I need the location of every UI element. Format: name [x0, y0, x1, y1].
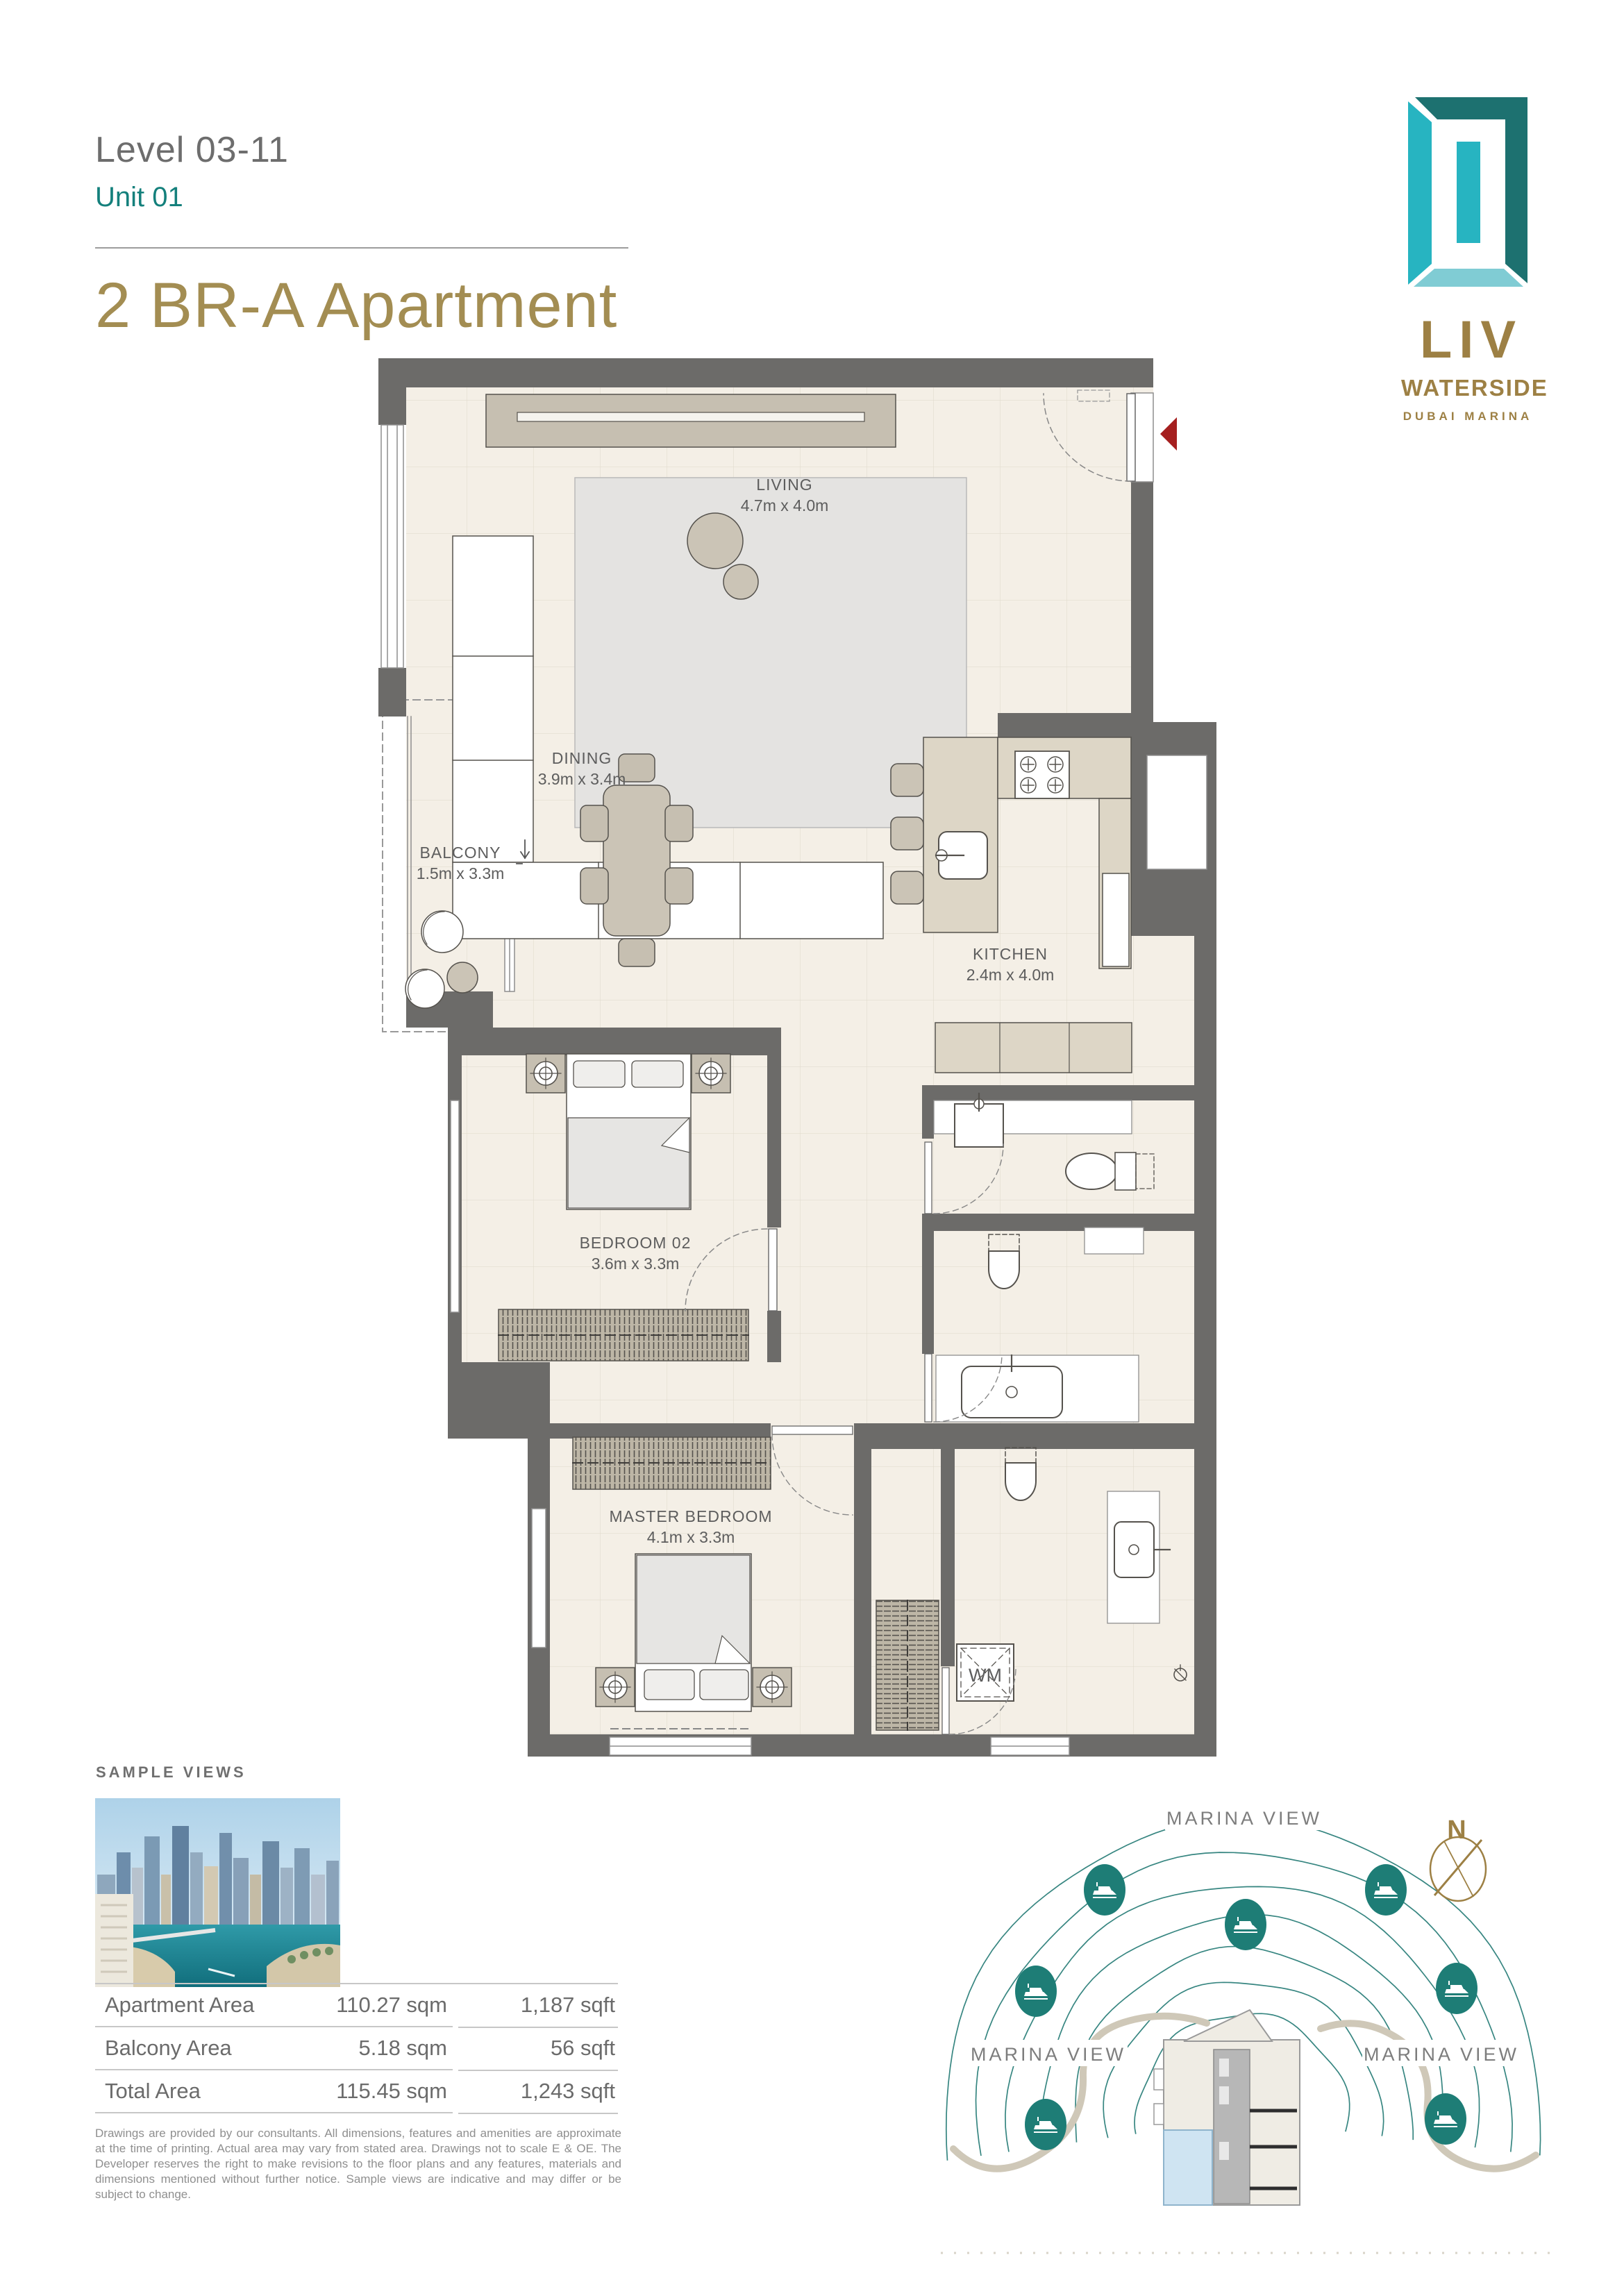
kitchen-dims: 2.4m x 4.0m	[966, 966, 1055, 984]
building-footprint	[1154, 2010, 1300, 2205]
compass-north-label: N	[1447, 1816, 1466, 1845]
wm-label: WM	[969, 1665, 1002, 1686]
floor-plan: LIVING 4.7m x 4.0m DINING 3.9m x 3.4m BA…	[378, 358, 1216, 1757]
sample-view-photo	[95, 1798, 340, 1987]
marina-view-label-left: MARINA VIEW	[971, 2044, 1126, 2065]
master-bedroom-dims: 4.1m x 3.3m	[647, 1528, 735, 1546]
table-row: Apartment Area 110.27 sqm 1,187 sqft	[95, 1984, 618, 2027]
row-sqft: 1,187 sqft	[521, 1993, 615, 2018]
area-table: Apartment Area 110.27 sqm 1,187 sqft Bal…	[95, 1983, 618, 2113]
row-sqm: 115.45 sqm	[336, 2079, 447, 2104]
boat-icon	[1436, 1963, 1477, 2014]
brochure-page: Level 03-11 Unit 01 2 BR-A Apartment LIV…	[0, 0, 1624, 2296]
kitchen-label: KITCHEN	[973, 945, 1048, 963]
row-sqft: 1,243 sqft	[521, 2079, 615, 2104]
balcony-label: BALCONY	[420, 844, 501, 862]
master-bedroom-label: MASTER BEDROOM	[609, 1507, 772, 1525]
dining-label: DINING	[552, 749, 612, 767]
bedroom02-label: BEDROOM 02	[580, 1234, 692, 1252]
balcony-dims: 1.5m x 3.3m	[417, 864, 505, 882]
bedroom02-dims: 3.6m x 3.3m	[592, 1255, 680, 1273]
marina-view-diagram: MARINA VIEW MARINA VIEW MARINA VIEW N	[941, 1804, 1559, 2253]
disclaimer-text: Drawings are provided by our consultants…	[95, 2126, 621, 2202]
sample-views-heading: SAMPLE VIEWS	[96, 1763, 246, 1782]
boat-icon	[1425, 2093, 1466, 2145]
living-label: LIVING	[756, 476, 812, 494]
marina-view-label-top: MARINA VIEW	[1166, 1808, 1322, 1829]
boat-icon	[1365, 1864, 1407, 1916]
living-dims: 4.7m x 4.0m	[741, 496, 829, 514]
boat-icon	[1025, 2099, 1066, 2150]
row-sqm: 5.18 sqm	[358, 2036, 447, 2061]
dining-dims: 3.9m x 3.4m	[538, 770, 626, 788]
boat-icon	[1084, 1864, 1125, 1916]
marina-view-label-right: MARINA VIEW	[1364, 2044, 1519, 2065]
table-row: Balcony Area 5.18 sqm 56 sqft	[95, 2027, 618, 2070]
table-row: Total Area 115.45 sqm 1,243 sqft	[95, 2070, 618, 2113]
boat-icon	[1015, 1966, 1057, 2017]
row-label: Apartment Area	[105, 1993, 254, 2018]
graphics-canvas: LIVING 4.7m x 4.0m DINING 3.9m x 3.4m BA…	[0, 0, 1624, 2296]
row-sqm: 110.27 sqm	[336, 1993, 447, 2018]
entry-arrow-icon	[1160, 417, 1177, 451]
row-label: Total Area	[105, 2079, 201, 2104]
row-sqft: 56 sqft	[551, 2036, 615, 2061]
row-label: Balcony Area	[105, 2036, 232, 2061]
compass-icon: N	[1430, 1816, 1486, 1901]
boat-icon	[1225, 1899, 1266, 1950]
unit-highlight	[1164, 2130, 1212, 2205]
